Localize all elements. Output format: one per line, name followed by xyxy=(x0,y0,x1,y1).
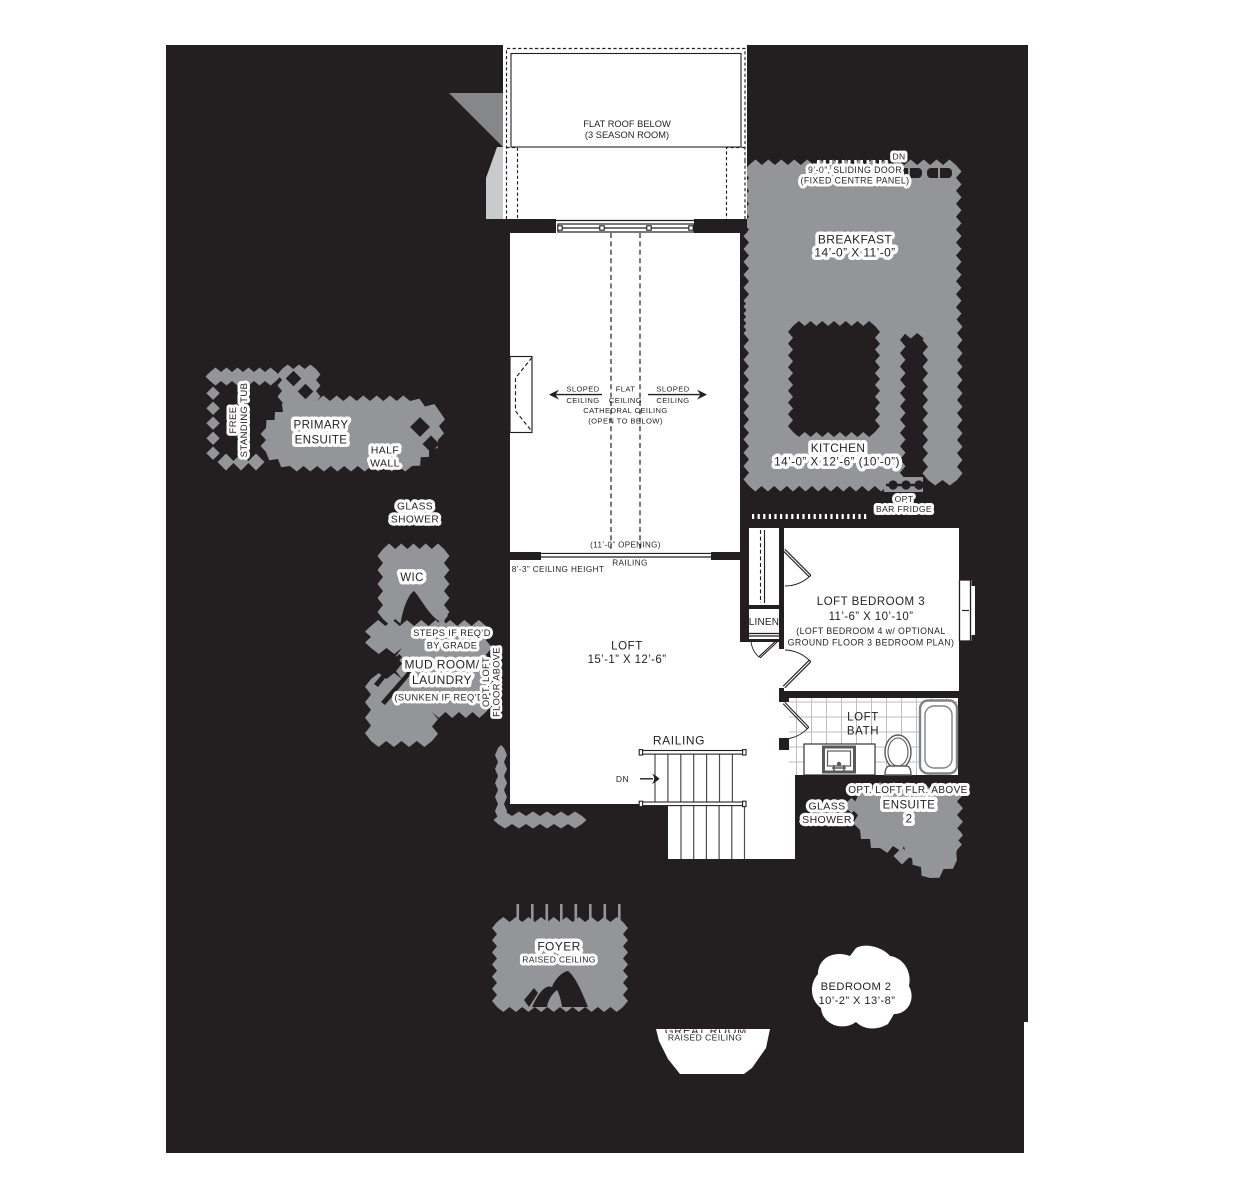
svg-text:CEILING: CEILING xyxy=(609,396,642,405)
svg-text:LINEN: LINEN xyxy=(749,617,779,628)
svg-text:ENSUITE: ENSUITE xyxy=(295,435,348,447)
svg-text:14’-0” X 12’-6” (10’-0”): 14’-0” X 12’-6” (10’-0”) xyxy=(774,455,900,469)
svg-text:WIC: WIC xyxy=(400,572,424,584)
svg-text:SHOWER: SHOWER xyxy=(802,814,852,826)
svg-text:FLAT: FLAT xyxy=(616,385,636,394)
svg-text:DN: DN xyxy=(892,152,905,162)
svg-text:WALL: WALL xyxy=(370,458,400,470)
svg-text:15’-1” X 12’-6”: 15’-1” X 12’-6” xyxy=(588,654,667,666)
svg-text:(SUNKEN IF REQ’D): (SUNKEN IF REQ’D) xyxy=(394,693,487,703)
svg-text:(3 SEASON ROOM): (3 SEASON ROOM) xyxy=(585,130,669,140)
svg-text:FREE: FREE xyxy=(228,407,239,434)
svg-text:8’-3” CEILING HEIGHT: 8’-3” CEILING HEIGHT xyxy=(512,565,605,574)
svg-text:OPT: OPT xyxy=(895,494,914,504)
svg-text:PRIMARY: PRIMARY xyxy=(294,420,349,432)
svg-text:STANDING TUB: STANDING TUB xyxy=(239,383,250,458)
svg-text:LOFT: LOFT xyxy=(611,641,643,653)
svg-text:LAUNDRY: LAUNDRY xyxy=(412,673,472,687)
svg-text:(FIXED CENTRE PANEL): (FIXED CENTRE PANEL) xyxy=(800,176,909,186)
svg-text:(OPEN TO BELOW): (OPEN TO BELOW) xyxy=(588,417,663,426)
svg-text:STEPS IF REQ’D: STEPS IF REQ’D xyxy=(413,628,491,638)
svg-text:LOFT: LOFT xyxy=(847,712,879,724)
svg-text:SLOPED: SLOPED xyxy=(656,385,689,394)
svg-text:10’-2” X 13’-8”: 10’-2” X 13’-8” xyxy=(819,995,896,1007)
svg-text:GLASS: GLASS xyxy=(808,801,845,813)
svg-text:KITCHEN: KITCHEN xyxy=(811,441,866,455)
svg-text:11’-6” X 10’-10”: 11’-6” X 10’-10” xyxy=(829,611,914,623)
svg-text:GLASS: GLASS xyxy=(397,502,433,513)
svg-text:9’-0”, SLIDING DOOR: 9’-0”, SLIDING DOOR xyxy=(808,165,902,175)
svg-text:RAISED CEILING: RAISED CEILING xyxy=(668,1033,742,1043)
svg-text:GROUND FLOOR 3 BEDROOM PLAN): GROUND FLOOR 3 BEDROOM PLAN) xyxy=(788,638,955,648)
svg-text:BREAKFAST: BREAKFAST xyxy=(818,233,893,247)
svg-text:MUD ROOM/: MUD ROOM/ xyxy=(405,658,480,672)
svg-text:RAILING: RAILING xyxy=(653,734,705,748)
svg-text:2: 2 xyxy=(906,814,913,826)
svg-text:RAISED CEILING: RAISED CEILING xyxy=(522,955,596,965)
svg-text:SLOPED: SLOPED xyxy=(566,385,599,394)
svg-text:BY GRADE: BY GRADE xyxy=(427,641,478,651)
svg-text:BATH: BATH xyxy=(847,726,879,738)
svg-text:CEILING: CEILING xyxy=(656,396,689,405)
svg-text:BAR FRIDGE: BAR FRIDGE xyxy=(876,504,932,514)
svg-text:ENSUITE: ENSUITE xyxy=(883,800,936,812)
svg-text:CEILING: CEILING xyxy=(566,396,599,405)
svg-text:(11’-0” OPENING): (11’-0” OPENING) xyxy=(590,541,661,550)
svg-text:(LOFT BEDROOM 4 w/ OPTIONAL: (LOFT BEDROOM 4 w/ OPTIONAL xyxy=(796,626,945,636)
svg-text:FLOOR ABOVE: FLOOR ABOVE xyxy=(492,647,502,717)
svg-text:OPT. LOFT: OPT. LOFT xyxy=(481,657,491,707)
svg-text:DN: DN xyxy=(616,774,629,784)
svg-text:SHOWER: SHOWER xyxy=(391,515,439,526)
svg-text:FLAT ROOF BELOW: FLAT ROOF BELOW xyxy=(583,119,671,129)
svg-text:RAILING: RAILING xyxy=(612,559,648,568)
svg-text:BEDROOM 2: BEDROOM 2 xyxy=(821,981,892,993)
svg-text:14’-0” X 11’-0”: 14’-0” X 11’-0” xyxy=(814,246,895,260)
svg-text:CATHEDRAL CEILING: CATHEDRAL CEILING xyxy=(583,406,667,415)
svg-text:OPT. LOFT FLR. ABOVE: OPT. LOFT FLR. ABOVE xyxy=(848,785,968,796)
svg-text:HALF: HALF xyxy=(371,445,399,457)
svg-text:FOYER: FOYER xyxy=(537,940,580,954)
svg-text:LOFT BEDROOM 3: LOFT BEDROOM 3 xyxy=(817,596,925,608)
